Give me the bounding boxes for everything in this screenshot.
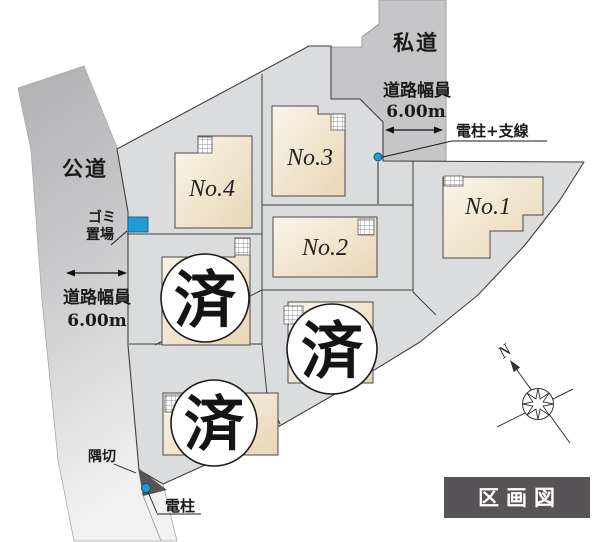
plot-label-no2: No.2 (301, 235, 348, 261)
private-road-label: 私道 (393, 30, 439, 55)
house-no4-hatch (198, 137, 212, 153)
public-road-label: 公道 (62, 156, 108, 181)
road-width-left-label: 道路幅員 (63, 287, 131, 308)
house-no3-hatch (331, 114, 345, 130)
plot-map: No.4 No.3 No.2 No.1 済 済 済 公道 私道 道路幅員 6.0… (0, 0, 600, 542)
house-no2-hatch (358, 219, 374, 235)
compass-north-arrow-icon (510, 360, 520, 372)
sold-label-1: 済 (174, 264, 237, 337)
compass-north-label: N (493, 339, 516, 363)
compass-rose: N (493, 339, 573, 443)
garbage-marker (128, 217, 148, 232)
utility-pole-dot (142, 484, 151, 493)
sold-label-3: 済 (184, 390, 245, 460)
road-width-top-value: 6.00m (386, 102, 445, 122)
plot-label-no4: No.4 (188, 176, 235, 202)
corner-cut-label: 隅切 (88, 449, 116, 465)
garbage-label-line2: 置場 (86, 226, 114, 243)
road-width-left-value: 6.00m (67, 311, 126, 331)
house-sold1-hatch (235, 238, 250, 255)
map-title: 区画図 (478, 485, 562, 510)
map-title-box: 区画図 (444, 477, 590, 518)
house-no1-hatch (444, 176, 463, 186)
utility-pole-wire-label: 電柱+支線 (456, 122, 529, 140)
utility-pole-wire-dot (374, 153, 382, 161)
utility-pole-label: 電柱 (165, 497, 195, 515)
plot-label-no1: No.1 (464, 194, 511, 220)
sold-label-2: 済 (301, 315, 364, 388)
road-width-top-label: 道路幅員 (383, 80, 451, 101)
garbage-label-line1: ゴミ (88, 209, 116, 226)
plot-label-no3: No.3 (286, 145, 333, 171)
